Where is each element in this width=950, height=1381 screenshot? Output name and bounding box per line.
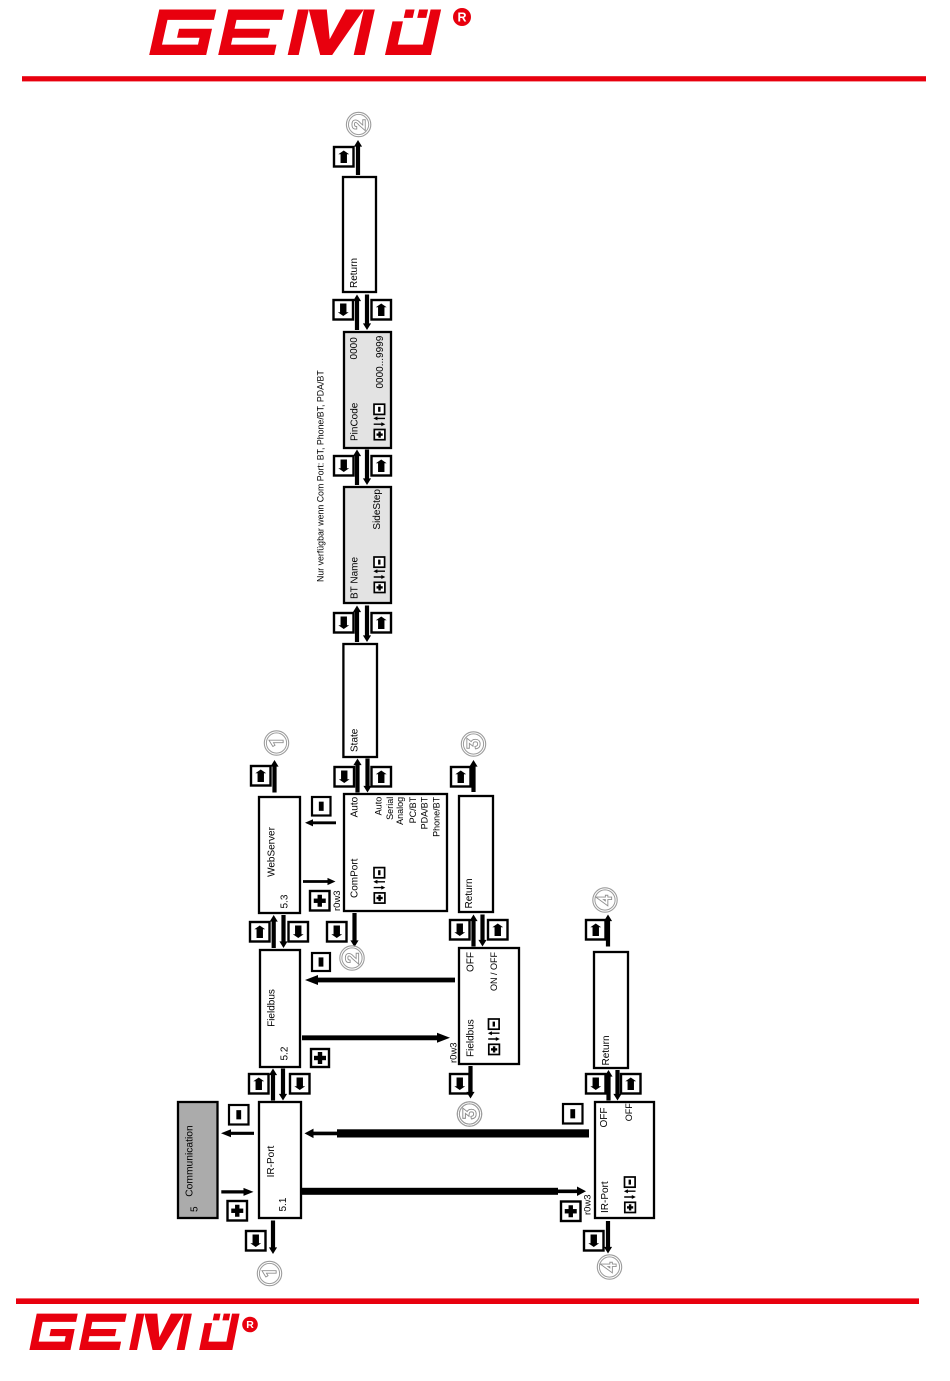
svg-text:Serial: Serial <box>385 797 395 820</box>
svg-text:Return: Return <box>601 1035 612 1065</box>
svg-text:r0w3: r0w3 <box>332 890 343 911</box>
svg-text:IR-Port: IR-Port <box>266 1145 277 1177</box>
svg-text:5.1: 5.1 <box>278 1197 289 1211</box>
svg-text:WebServer: WebServer <box>266 826 277 877</box>
svg-text:Return: Return <box>464 878 475 908</box>
svg-text:Phone/BT: Phone/BT <box>431 796 441 837</box>
svg-text:5: 5 <box>190 1206 201 1212</box>
svg-text:IR-Port: IR-Port <box>600 1181 611 1213</box>
svg-text:r0w3: r0w3 <box>449 1042 460 1063</box>
svg-text:SideStep: SideStep <box>372 489 383 530</box>
svg-text:BT Name: BT Name <box>350 557 361 599</box>
svg-text:5.3: 5.3 <box>279 894 290 908</box>
svg-text:0000...9999: 0000...9999 <box>375 335 386 388</box>
svg-text:ComPort: ComPort <box>350 858 361 898</box>
svg-text:PinCode: PinCode <box>350 402 361 441</box>
svg-text:OFF: OFF <box>599 1108 610 1128</box>
svg-text:ON / OFF: ON / OFF <box>489 952 499 991</box>
svg-text:0000: 0000 <box>349 337 360 360</box>
svg-text:Return: Return <box>349 258 360 288</box>
svg-text:Fieldbus: Fieldbus <box>466 1019 477 1057</box>
svg-text:Analog: Analog <box>395 797 405 825</box>
svg-text:r0w3: r0w3 <box>583 1194 594 1215</box>
svg-text:PDA/BT: PDA/BT <box>420 796 430 829</box>
svg-text:OFF: OFF <box>466 952 477 972</box>
svg-text:State: State <box>350 728 361 752</box>
svg-text:OFF: OFF <box>624 1103 634 1121</box>
svg-text:Auto: Auto <box>374 797 384 816</box>
svg-text:Auto: Auto <box>350 796 361 817</box>
svg-text:R: R <box>457 10 466 24</box>
svg-text:R: R <box>246 1319 254 1331</box>
svg-text:Fieldbus: Fieldbus <box>266 989 277 1027</box>
svg-text:5.2: 5.2 <box>279 1046 290 1060</box>
svg-text:Communication: Communication <box>185 1125 196 1197</box>
svg-text:PC/BT: PC/BT <box>408 796 418 823</box>
svg-text:Nur verfügbar wenn Com Port: B: Nur verfügbar wenn Com Port: BT, Phone/B… <box>315 370 325 582</box>
